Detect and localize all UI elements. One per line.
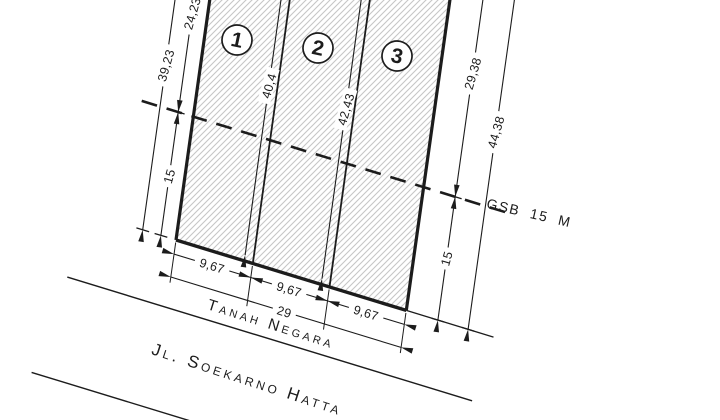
road-name-text: Jl. Soekarno Hatta — [149, 340, 345, 420]
dim-label-left-total: 39,23 — [153, 43, 179, 87]
dim-label-right-total: 44,38 — [483, 110, 509, 154]
extension-line — [400, 313, 406, 353]
dim-label-frontage-1: 9,67 — [193, 254, 232, 278]
state-land-text: Tanah Negara — [205, 296, 336, 352]
dim-label-right-setback: 15 — [437, 246, 457, 271]
front-boundary-extension — [406, 310, 493, 337]
dim-text: 24,23 — [181, 0, 203, 31]
dim-text: 9,67 — [198, 256, 227, 277]
dim-label-frontage-3: 9,67 — [347, 301, 386, 325]
extension-line — [247, 266, 253, 306]
gsb-text: GSB 15 M — [485, 195, 573, 230]
dim-text: 29,38 — [462, 56, 484, 91]
dim-text: 9,67 — [352, 303, 381, 324]
road-edge-lower — [32, 372, 192, 420]
dim-text: 39,23 — [155, 48, 177, 83]
dim-text: 9,67 — [275, 279, 304, 300]
dim-text: 44,38 — [485, 115, 507, 150]
dim-label-frontage-2: 9,67 — [270, 277, 309, 301]
gsb-label: GSB 15 M — [485, 195, 573, 230]
dim-label-left-upper: 24,23 — [180, 0, 206, 36]
dim-line-right-upper — [455, 0, 489, 197]
dim-line-left-total — [143, 0, 181, 230]
dim-label-left-setback: 15 — [159, 164, 179, 189]
site-plan-drawing: 9,67 9,67 9,67 29 15 24,23 39,23 40,4 42… — [0, 0, 720, 420]
dim-label-right-upper: 29,38 — [460, 51, 486, 95]
extension-line — [324, 289, 330, 329]
site-plan-canvas: 9,67 9,67 9,67 29 15 24,23 39,23 40,4 42… — [0, 0, 720, 420]
extension-line — [170, 243, 176, 283]
road-name-label: Jl. Soekarno Hatta — [149, 340, 345, 420]
state-land-label: Tanah Negara — [205, 296, 336, 352]
